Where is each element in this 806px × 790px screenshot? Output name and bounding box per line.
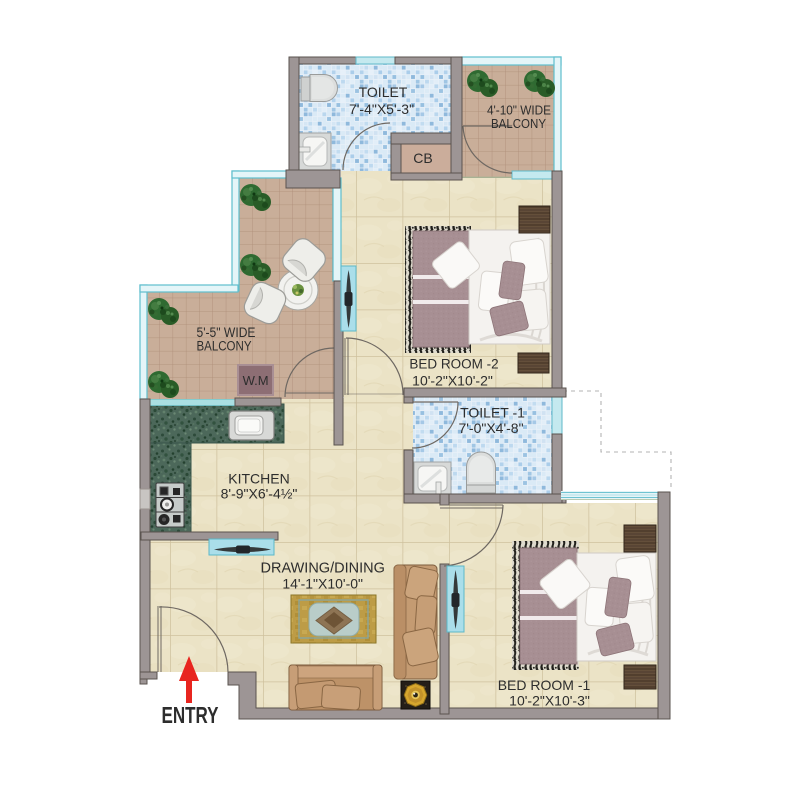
svg-text:8'-9"X6'-4½": 8'-9"X6'-4½" (221, 486, 298, 502)
svg-text:TOILET -1: TOILET -1 (460, 405, 525, 421)
svg-text:10'-2"X10'-3": 10'-2"X10'-3" (509, 693, 590, 709)
svg-text:W.M: W.M (243, 373, 269, 388)
svg-text:BED ROOM -2: BED ROOM -2 (409, 357, 498, 372)
svg-text:7'-4"X5'-3": 7'-4"X5'-3" (349, 101, 414, 117)
svg-text:TOILET: TOILET (359, 84, 408, 100)
svg-text:BALCONY: BALCONY (197, 339, 252, 354)
svg-text:CB: CB (413, 150, 432, 166)
svg-text:BALCONY: BALCONY (491, 116, 546, 131)
svg-text:14'-1"X10'-0": 14'-1"X10'-0" (282, 576, 363, 592)
svg-text:10'-2"X10'-2": 10'-2"X10'-2" (412, 373, 493, 389)
svg-text:ENTRY: ENTRY (161, 704, 218, 729)
svg-text:7'-0"X4'-8": 7'-0"X4'-8" (458, 420, 523, 436)
svg-text:BED ROOM -1: BED ROOM -1 (498, 677, 591, 693)
svg-text:DRAWING/DINING: DRAWING/DINING (261, 560, 385, 576)
svg-text:KITCHEN: KITCHEN (228, 471, 289, 487)
